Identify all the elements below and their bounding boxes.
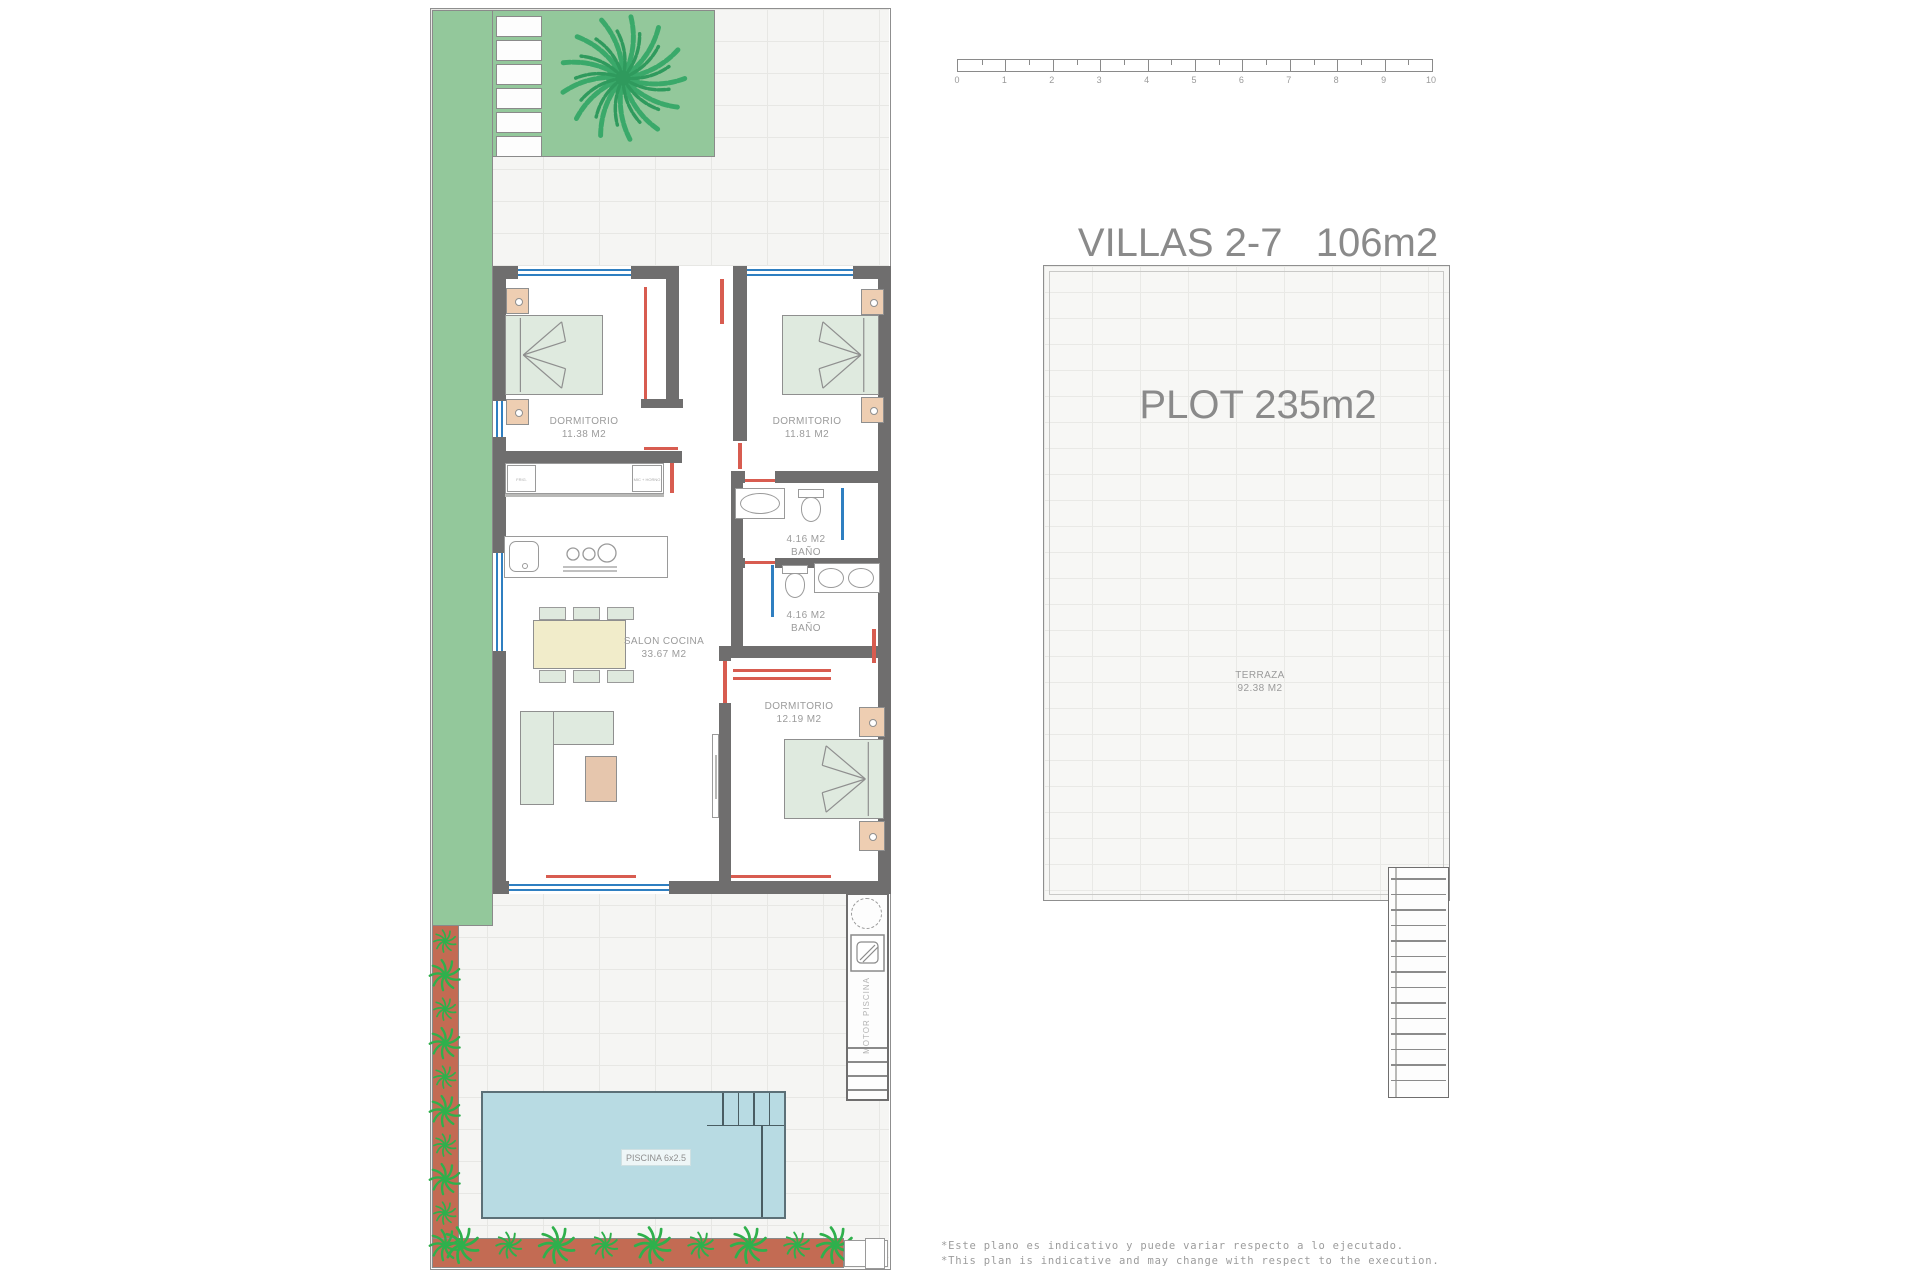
scale-bar [957, 59, 1433, 72]
front-door-leaf [720, 279, 724, 324]
pool-steps [707, 1093, 784, 1126]
nightstand [861, 397, 884, 423]
floor-plan-sheet: PISCINA 6x2.5 MOTOR PISCINA [0, 0, 1920, 1280]
stair-tread [1391, 878, 1446, 880]
slider-salon [546, 875, 636, 878]
boiler-icon [851, 898, 882, 929]
plant-icon [494, 1230, 524, 1260]
stair-tread [1391, 1033, 1446, 1035]
stair-tread [1391, 1002, 1446, 1004]
toilet-icon-bath1 [801, 497, 821, 522]
scale-major-tick [1005, 60, 1006, 71]
pool-step-divider [722, 1093, 724, 1126]
scale-tick-label: 8 [1334, 75, 1339, 85]
room-label-salon: SALON COCINA 33.67 M2 [624, 635, 704, 661]
scale-tick-label: 10 [1426, 75, 1436, 85]
wall-bed3-top [719, 646, 891, 658]
plant-icon [427, 957, 463, 993]
wall-bed1-closet-stub [641, 399, 683, 408]
motor-step [848, 1075, 887, 1077]
stair-tread [1391, 971, 1446, 973]
stair-tread [1391, 925, 1446, 927]
planter-plant [427, 1161, 463, 1197]
scale-major-tick [1100, 60, 1101, 71]
scale-minor-tick [1408, 60, 1409, 65]
closet-bed3-b [733, 677, 831, 680]
garden-gate [844, 1240, 888, 1267]
scale-tick-label: 2 [1049, 75, 1054, 85]
planter-plant [427, 957, 463, 993]
planter-plant [427, 1025, 463, 1061]
villa-plot: PISCINA 6x2.5 MOTOR PISCINA [430, 8, 891, 1270]
nightstand [861, 289, 884, 315]
front-door-opening [679, 266, 733, 279]
dining-chair [573, 607, 600, 620]
scale-minor-tick [1124, 60, 1125, 65]
scale-tick-label: 3 [1097, 75, 1102, 85]
plant-icon [632, 1224, 674, 1266]
scale-tick-label: 0 [954, 75, 959, 85]
page-title-line2: PLOT 235m2 [1008, 378, 1508, 432]
dining-table [533, 620, 626, 669]
motor-step [848, 1047, 887, 1049]
shower-screen-bath2 [771, 565, 774, 617]
door-bed1 [644, 447, 678, 450]
bed-icon-dormitorio3 [784, 739, 884, 819]
stair-tread [1391, 1080, 1446, 1082]
planter-plant [632, 1224, 674, 1266]
sink-icon [509, 541, 539, 572]
closet-bed1 [644, 287, 647, 399]
room-label-dormitorio1: DORMITORIO 11.38 M2 [550, 415, 619, 441]
washbasin-icon-bath1 [740, 493, 780, 514]
stair-tread [1391, 1049, 1446, 1051]
scale-tick-label: 1 [1002, 75, 1007, 85]
scale-minor-tick [1266, 60, 1267, 65]
scale-minor-tick [1314, 60, 1315, 65]
tv-unit [712, 734, 719, 818]
scale-tick-label: 9 [1381, 75, 1386, 85]
counter-edge [505, 494, 664, 497]
wall-kitchen [505, 451, 666, 463]
pool: PISCINA 6x2.5 [481, 1091, 786, 1219]
plant-icon [440, 1224, 482, 1266]
scale-minor-tick [1361, 60, 1362, 65]
door-bath2 [745, 561, 775, 564]
stair-tread [1391, 1018, 1446, 1020]
pool-step-divider [753, 1093, 755, 1126]
plant-icon [432, 996, 458, 1022]
planter-plant [432, 928, 458, 954]
planter-plant [432, 1064, 458, 1090]
room-label-terraza: TERRAZA 92.38 M2 [1235, 669, 1284, 695]
scale-minor-tick [982, 60, 983, 65]
plant-icon [432, 1064, 458, 1090]
stair-tread [1391, 987, 1446, 989]
plant-icon [427, 1025, 463, 1061]
scale-minor-tick [1171, 60, 1172, 65]
plant-icon [782, 1230, 812, 1260]
scale-major-tick [1337, 60, 1338, 71]
planter-plant [432, 1132, 458, 1158]
scale-tick-label: 7 [1286, 75, 1291, 85]
wall-kitchen-stub [666, 451, 682, 463]
sofa-left [520, 711, 554, 805]
window-bottom [509, 881, 669, 894]
closet-bed3-a [733, 669, 831, 672]
scale-major-tick [1290, 60, 1291, 71]
scale-bar-labels: 012345678910 [957, 75, 1433, 87]
scale-major-tick [1242, 60, 1243, 71]
scale-minor-tick [1077, 60, 1078, 65]
dining-chair [607, 670, 634, 683]
dining-chair [573, 670, 600, 683]
scale-tick-label: 5 [1191, 75, 1196, 85]
room-label-bano2: 4.16 M2 BAÑO [787, 609, 826, 635]
stair-tread [1391, 894, 1446, 896]
oven-column: MIC + HORNO [632, 465, 662, 492]
window-bed2 [747, 266, 853, 279]
plant-icon [432, 1200, 458, 1226]
door-bath1 [745, 479, 775, 482]
window-left-1 [493, 401, 506, 437]
scale-major-tick [1053, 60, 1054, 71]
window-bed1 [518, 266, 631, 279]
planter-plant [427, 1093, 463, 1129]
plant-icon [590, 1230, 620, 1260]
dining-chair [539, 607, 566, 620]
oven-label: MIC + HORNO [633, 477, 661, 482]
planter-plant [440, 1224, 482, 1266]
room-label-bano1: 4.16 M2 BAÑO [787, 533, 826, 559]
plant-icon [686, 1230, 716, 1260]
planter-plant [686, 1230, 716, 1260]
pool-step-divider [738, 1093, 740, 1126]
plant-icon [432, 1132, 458, 1158]
bed-icon-dormitorio2 [782, 315, 879, 395]
stair-tread [1391, 956, 1446, 958]
slider-bed3 [731, 875, 831, 878]
motor-step [848, 1089, 887, 1091]
fridge: FRIG. [507, 465, 536, 492]
nightstand [506, 399, 529, 425]
door-salon [670, 463, 674, 493]
plant-icon [432, 928, 458, 954]
motor-room-steps [848, 1047, 887, 1099]
plant-icon [427, 1161, 463, 1197]
footnote-es: *Este plano es indicativo y puede variar… [941, 1240, 1404, 1252]
pool-label-box: PISCINA 6x2.5 [621, 1149, 691, 1166]
plant-icon [536, 1224, 578, 1266]
motor-room: MOTOR PISCINA [846, 893, 889, 1101]
wall-bed2-hall [733, 279, 747, 441]
pool-divider [761, 1126, 763, 1217]
scale-tick-label: 4 [1144, 75, 1149, 85]
scale-major-tick [1148, 60, 1149, 71]
shower-screen-bath1 [841, 488, 844, 540]
room-label-dormitorio2: DORMITORIO 11.81 M2 [773, 415, 842, 441]
bed-icon-dormitorio1 [505, 315, 603, 395]
scale-minor-tick [1219, 60, 1220, 65]
stair-tread [1391, 909, 1446, 911]
washbasin-icon-bath2-a [818, 568, 844, 588]
stair-stringer [1395, 868, 1397, 1097]
dining-chair [539, 670, 566, 683]
nightstand [859, 821, 885, 851]
fridge-label: FRIG. [508, 477, 535, 482]
pool-step-divider [769, 1093, 771, 1126]
door-bed2 [738, 443, 742, 469]
washbasin-icon-bath2-b [848, 568, 874, 588]
dining-chair [607, 607, 634, 620]
stair-tread [1391, 1064, 1446, 1066]
garden-gate-leaf [865, 1238, 885, 1269]
planter-plant [590, 1230, 620, 1260]
planter-plant [782, 1230, 812, 1260]
planter-plant [728, 1224, 770, 1266]
wall-bed1-hall [666, 279, 679, 406]
coffee-table [585, 756, 617, 802]
scale-tick-label: 6 [1239, 75, 1244, 85]
plant-icon [427, 1093, 463, 1129]
planter-plant [432, 996, 458, 1022]
planter-plant [494, 1230, 524, 1260]
washing-machine-icon [850, 934, 885, 972]
planter-plant [432, 1200, 458, 1226]
hob-icon [561, 540, 619, 574]
staircase [1388, 867, 1449, 1098]
page-title-line1: VILLAS 2-7 106m2 [1008, 216, 1508, 270]
scale-major-tick [1385, 60, 1386, 71]
nightstand [859, 707, 885, 737]
pool-label: PISCINA 6x2.5 [622, 1153, 690, 1163]
nightstand [506, 288, 529, 314]
plant-icon [728, 1224, 770, 1266]
room-label-dormitorio3: DORMITORIO 12.19 M2 [765, 700, 834, 726]
scale-minor-tick [1029, 60, 1030, 65]
stair-tread [1391, 940, 1446, 942]
motor-room-label: MOTOR PISCINA [862, 977, 871, 1054]
page-title: VILLAS 2-7 106m2 PLOT 235m2 [1008, 108, 1508, 540]
door-bed3 [723, 661, 727, 703]
closet-bath2-end [872, 629, 876, 663]
toilet-icon-bath2 [785, 573, 805, 598]
motor-step [848, 1061, 887, 1063]
planter-plant [536, 1224, 578, 1266]
scale-major-tick [1195, 60, 1196, 71]
footnote-en: *This plan is indicative and may change … [941, 1255, 1440, 1267]
